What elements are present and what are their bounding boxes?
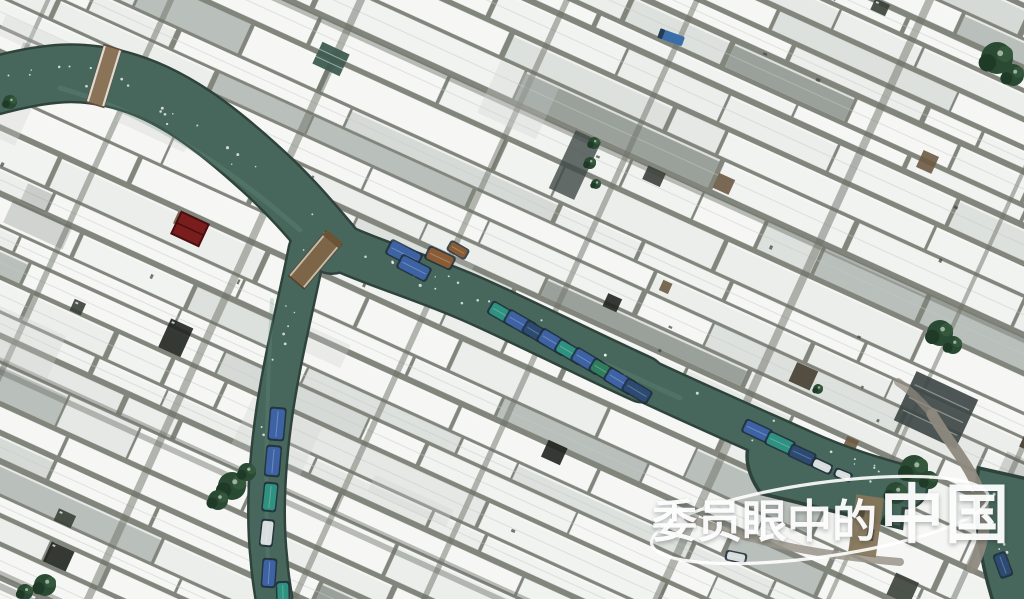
boat: [261, 481, 279, 512]
boat: [267, 406, 287, 441]
boat: [259, 518, 276, 547]
boat: [264, 444, 283, 477]
boat: [276, 581, 291, 599]
boat: [260, 558, 277, 589]
scene-svg: [0, 0, 1024, 599]
aerial-photo: 委员眼中的 中国: [0, 0, 1024, 599]
